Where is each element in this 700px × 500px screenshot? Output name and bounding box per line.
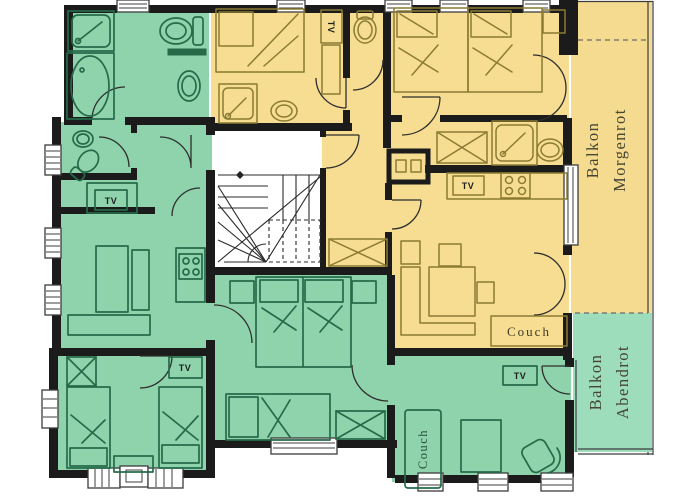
tv-label: TV xyxy=(462,181,475,191)
tv-label: TV xyxy=(179,363,192,373)
couch-label: Couch xyxy=(416,429,430,469)
floorplan-svg: Balkon Morgenrot Balkon Abendrot xyxy=(0,0,700,500)
tv-label: TV xyxy=(514,371,527,381)
room-fills xyxy=(51,6,571,482)
window-bottom-living-3 xyxy=(541,473,573,491)
window-bay-top-1 xyxy=(117,0,149,12)
balcony-abendrot-label-line2: Abendrot xyxy=(613,345,632,419)
window-bay-top-4 xyxy=(440,0,468,12)
window-left-3 xyxy=(45,285,61,315)
balcony-morgenrot-label-line2: Morgenrot xyxy=(610,108,629,192)
window-left-1 xyxy=(45,145,61,175)
window-bottom-bedroom-left-b xyxy=(120,466,148,487)
balcony-abendrot: Balkon Abendrot xyxy=(573,313,653,454)
window-bottom-bedroom-left-a xyxy=(88,468,120,488)
window-left-bedroom xyxy=(42,390,58,428)
hallway-yellow xyxy=(322,128,392,272)
window-left-2 xyxy=(45,228,61,258)
tv-label: TV xyxy=(105,196,118,206)
couch-label: Couch xyxy=(507,324,551,339)
balcony-morgenrot-label-line1: Balkon xyxy=(583,122,602,179)
window-bay-top-2 xyxy=(277,0,305,12)
room-bedroom-green-middle xyxy=(211,272,393,446)
window-bay-top-3 xyxy=(385,0,412,12)
room-bathroom-green xyxy=(64,6,209,122)
stairs xyxy=(218,171,320,262)
balcony-abendrot-label-line1: Balkon xyxy=(586,354,605,411)
window-right-kitchen xyxy=(564,165,578,245)
room-bedroom-yellow-top xyxy=(211,6,392,130)
tv-label: TV xyxy=(326,21,336,34)
window-bottom-living-2 xyxy=(478,473,508,491)
floorplan: Balkon Morgenrot Balkon Abendrot xyxy=(0,0,700,500)
half-wall xyxy=(168,49,206,55)
